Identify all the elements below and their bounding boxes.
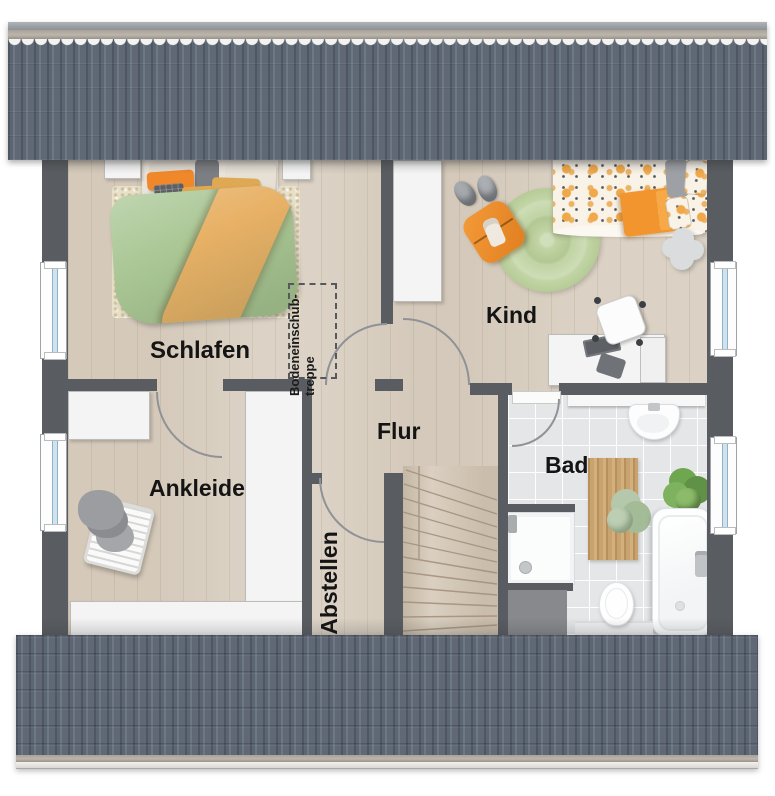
label-schlafen: Schlafen — [150, 337, 250, 365]
label-bad: Bad — [545, 452, 588, 479]
wall-kind-bad-right — [559, 383, 707, 395]
roof-fascia — [8, 30, 767, 39]
window-cap — [44, 524, 66, 532]
chair-wheel — [636, 339, 643, 346]
wall-schlafen-ankleide-left — [68, 379, 157, 391]
clothes — [78, 490, 124, 530]
floor-plan: Bodeneinschub- treppe Schlafen Kind Flur… — [0, 0, 775, 796]
ankleide-cabinet-top — [68, 391, 150, 440]
sink-basin — [637, 414, 669, 433]
window-kind — [710, 262, 737, 356]
exterior-wall-right — [707, 152, 733, 648]
window-glass — [52, 441, 58, 525]
window-cap — [714, 527, 736, 535]
wall-stub-flur — [375, 379, 403, 391]
label-ankleide: Ankleide — [149, 475, 245, 502]
desk-chair — [592, 295, 648, 347]
label-flur: Flur — [377, 418, 420, 445]
roof-shadow-bottom — [42, 618, 733, 636]
wall-abstellen-stairs — [384, 473, 403, 637]
roof-shadow-top — [42, 158, 733, 174]
towel — [607, 487, 651, 537]
bad-door-leaf — [512, 391, 561, 404]
wall-schlafen-kind — [381, 156, 393, 324]
duvet-shading — [109, 184, 300, 326]
shower-faucet — [508, 515, 517, 533]
cloud-table — [662, 228, 706, 270]
window-glass — [52, 269, 58, 353]
roof-top — [8, 22, 767, 160]
laundry-basket — [78, 490, 156, 576]
exterior-wall-left — [42, 152, 68, 648]
kind-wardrobe — [393, 160, 442, 302]
tub-drain — [675, 601, 685, 611]
shower-tray — [506, 512, 575, 585]
wall-stairs-bad — [498, 391, 508, 637]
sink-faucet — [648, 403, 660, 411]
kid-pillow-dot-mid — [665, 195, 693, 230]
window-bad — [710, 437, 737, 534]
window-cap — [714, 349, 736, 357]
window-cap — [44, 433, 66, 441]
toilet-seat-line — [605, 588, 628, 619]
label-kind: Kind — [486, 302, 537, 329]
chair-wheel — [594, 297, 601, 304]
window-cap — [44, 261, 66, 269]
attic-hatch-line1: Bodeneinschub- — [287, 294, 302, 396]
window-cap — [714, 436, 736, 444]
roof-bottom-edge — [16, 762, 758, 769]
roof-tile-scallops — [8, 39, 767, 47]
roof-bottom-tile-field — [16, 635, 758, 755]
roof-bottom — [16, 635, 758, 768]
wall-ankleide-flur — [302, 379, 312, 637]
window-glass — [722, 444, 728, 528]
window-cap — [44, 352, 66, 360]
window-ankleide — [40, 434, 67, 531]
window-cap — [714, 261, 736, 269]
wall-abstellen-top — [302, 473, 322, 484]
chair-wheel — [592, 335, 599, 342]
attic-hatch-label: Bodeneinschub- treppe — [287, 264, 319, 396]
roof-tile-field — [8, 39, 767, 160]
shower-drain — [519, 561, 532, 574]
chair-wheel — [639, 301, 646, 308]
doll — [481, 216, 507, 248]
window-glass — [722, 269, 728, 350]
ankleide-wardrobe-right — [245, 391, 304, 605]
plant — [663, 466, 713, 514]
duvet — [109, 184, 300, 326]
roof-bottom-fascia — [16, 755, 758, 762]
window-schlafen — [40, 262, 67, 359]
staircase — [403, 466, 498, 637]
attic-hatch-line2: treppe — [302, 356, 317, 396]
